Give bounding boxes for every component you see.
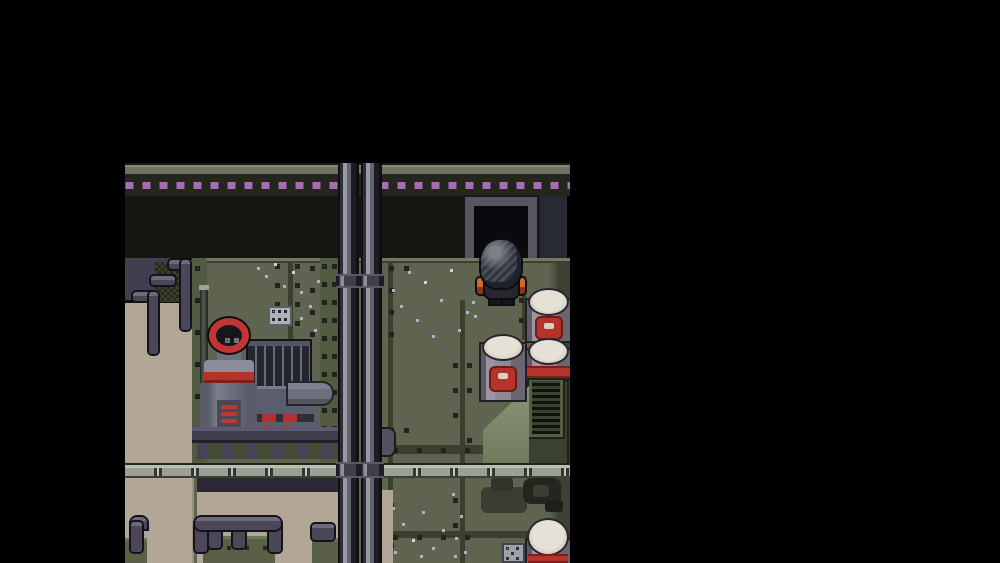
catwalk-beam [192, 427, 345, 443]
barrel-hazard-mark [491, 368, 515, 390]
barrel-lid [528, 338, 569, 365]
floor-vent-holes [507, 548, 508, 549]
barrel-lid [482, 334, 524, 361]
stair-rail-segment [151, 276, 175, 285]
catwalk-shadow [197, 477, 343, 492]
pipe-coupling [336, 462, 384, 478]
boiler-red-band [204, 372, 254, 383]
floor-machinery [545, 500, 563, 512]
boiler-red-ring [209, 318, 249, 353]
catwalk-posts [197, 443, 343, 459]
bench-frame-prong [209, 528, 221, 548]
vertical-pipe [361, 163, 382, 563]
pipe-coupling [336, 274, 384, 288]
bench-frame-leg [131, 522, 142, 552]
barrel-red-stripe [527, 366, 570, 378]
pillar-studs [324, 266, 325, 267]
barrel-hazard-mark [537, 318, 561, 338]
panel-seam [460, 300, 465, 563]
boiler-vent-bars [221, 405, 237, 409]
stair-rail-post [181, 260, 190, 330]
right-edge-shadow [567, 196, 570, 258]
thin-wall-pipe-cap [199, 285, 209, 290]
bench-frame-prong [233, 528, 245, 548]
crate-grille [529, 378, 563, 437]
wall-vent-plate [268, 306, 292, 326]
player-head [481, 240, 521, 288]
barrel-lid [527, 518, 569, 556]
barrel-mark-slot [544, 323, 554, 329]
barrel-lid [528, 288, 569, 316]
letterbox-stage [0, 0, 1000, 563]
machine-pipe-elbow [288, 383, 332, 404]
machine-box-stripe [256, 414, 314, 422]
barrel-red-stripe [528, 554, 568, 563]
machine-fins [248, 341, 310, 386]
tan-floor-sliver [381, 490, 393, 563]
gear-hub [533, 485, 549, 497]
floor-vent-plate [502, 543, 525, 563]
vent-plate-holes [273, 311, 274, 312]
vertical-pipe [338, 163, 359, 563]
door-side-panel [537, 196, 567, 258]
pillar-studs [197, 268, 198, 269]
barrel-mark-slot [498, 373, 508, 379]
stair-rail-post [149, 292, 158, 354]
wall-speckles-bright [125, 0, 126, 1]
bench-frame [312, 524, 334, 540]
bench-frame-top [195, 517, 281, 530]
game-viewport[interactable] [125, 0, 570, 563]
boiler-ring-dots [227, 340, 228, 341]
floor-machinery [491, 477, 513, 491]
